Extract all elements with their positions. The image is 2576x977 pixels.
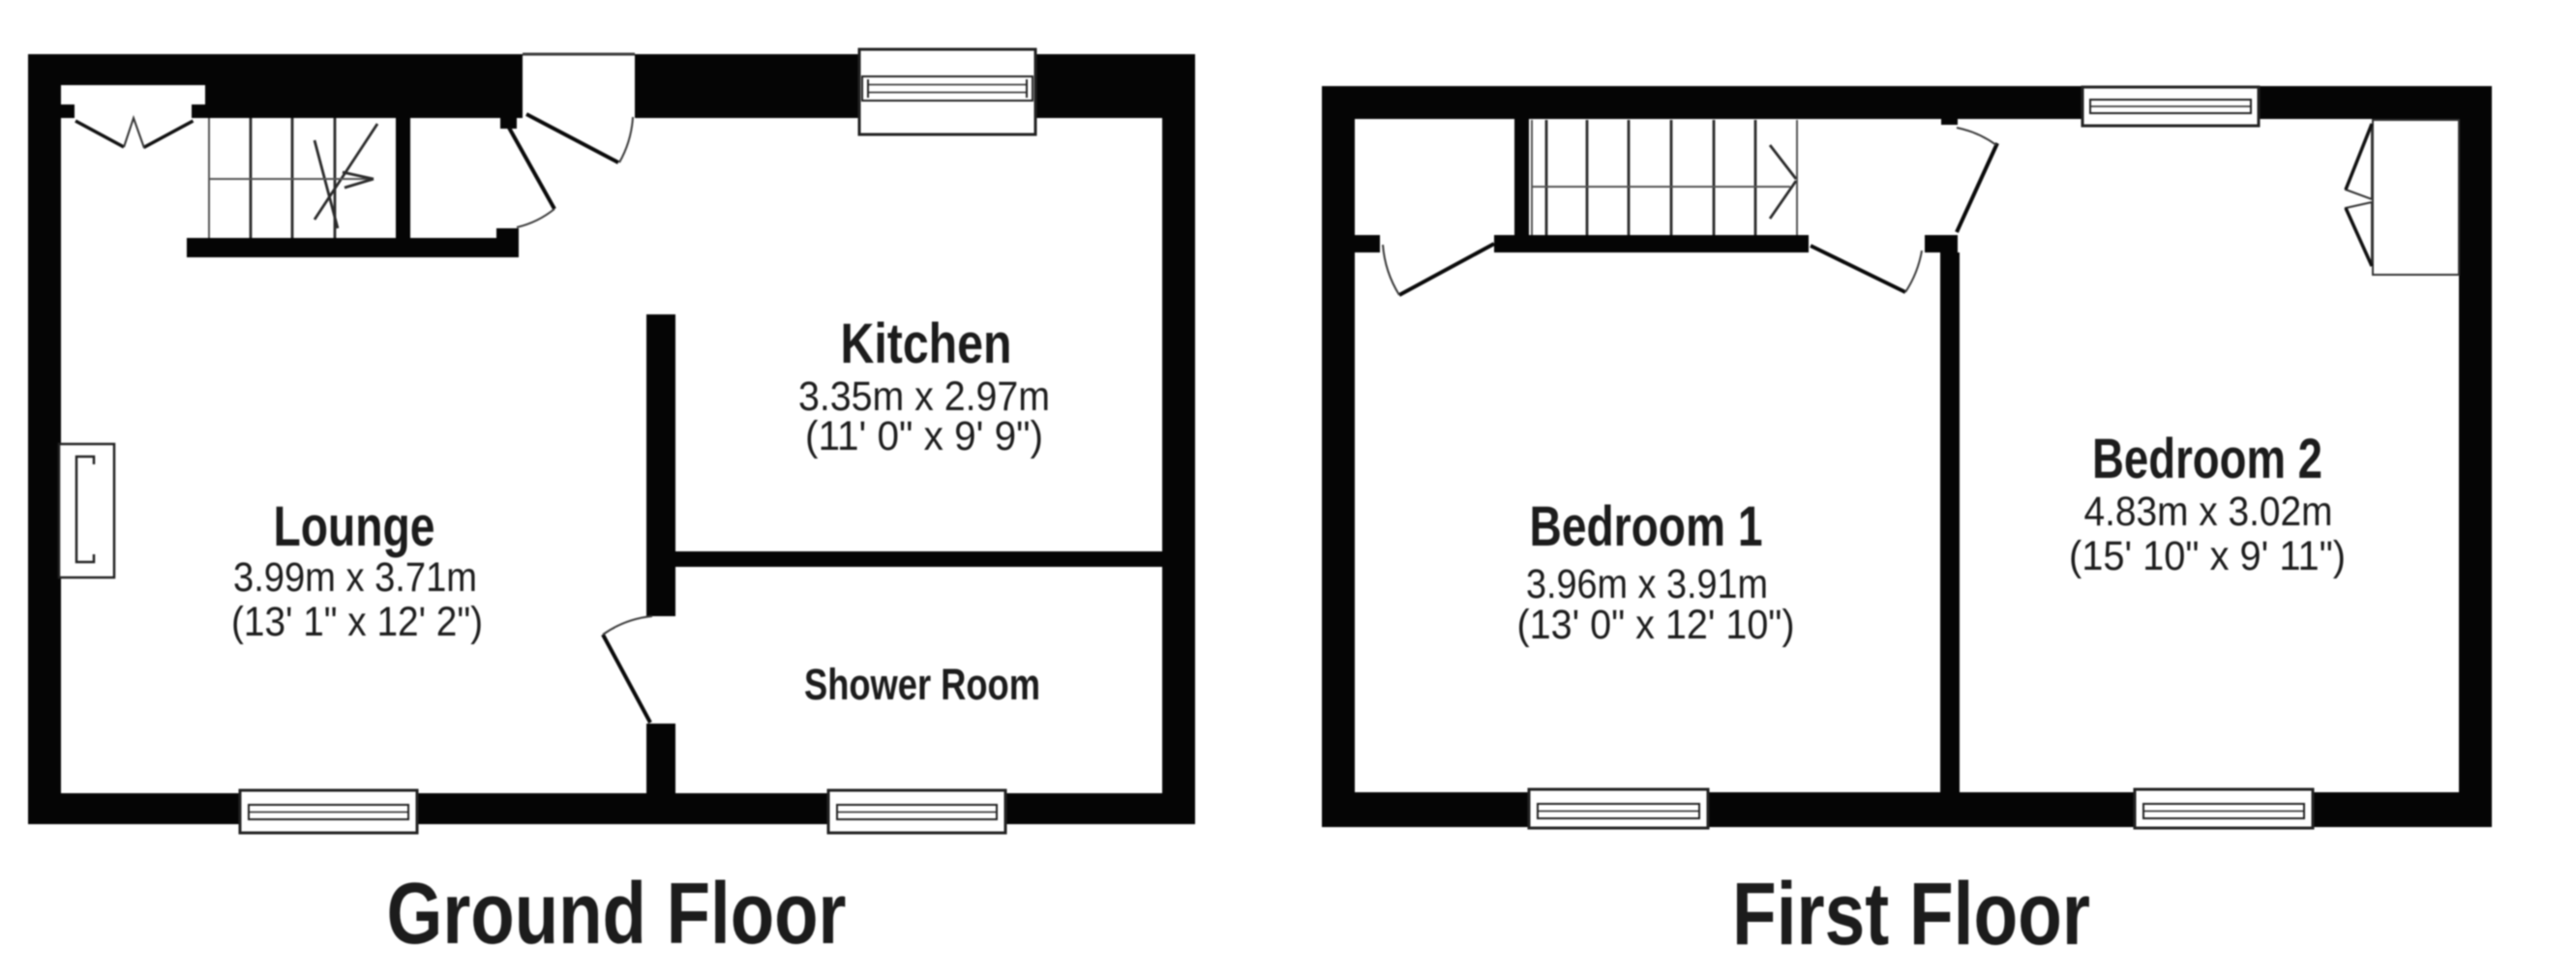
svg-text:Lounge: Lounge bbox=[274, 495, 435, 558]
svg-text:4.83m x 3.02m: 4.83m x 3.02m bbox=[2084, 488, 2333, 535]
svg-text:(13' 1" x 12' 2"): (13' 1" x 12' 2") bbox=[231, 599, 483, 645]
svg-text:Bedroom 2: Bedroom 2 bbox=[2092, 428, 2322, 490]
svg-text:Bedroom 1: Bedroom 1 bbox=[1530, 495, 1763, 558]
svg-text:Shower Room: Shower Room bbox=[804, 660, 1040, 709]
svg-text:3.96m x 3.91m: 3.96m x 3.91m bbox=[1526, 561, 1768, 607]
svg-text:Kitchen: Kitchen bbox=[841, 312, 1012, 375]
svg-text:First Floor: First Floor bbox=[1732, 865, 2090, 963]
svg-text:(11' 0" x 9' 9"): (11' 0" x 9' 9") bbox=[805, 413, 1043, 459]
svg-text:(15' 10" x 9' 11"): (15' 10" x 9' 11") bbox=[2069, 533, 2346, 579]
svg-text:Ground Floor: Ground Floor bbox=[387, 866, 847, 962]
svg-text:3.99m x 3.71m: 3.99m x 3.71m bbox=[233, 554, 477, 601]
svg-text:(13' 0" x 12' 10"): (13' 0" x 12' 10") bbox=[1517, 602, 1795, 648]
